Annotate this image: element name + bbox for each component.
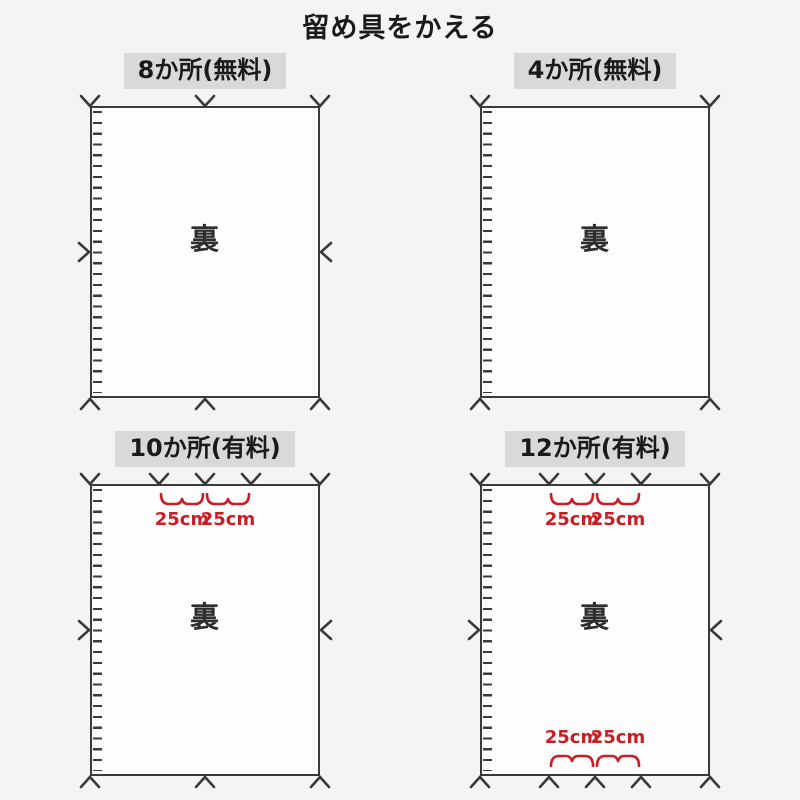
futon-back-sheet: 裏 25cm25cm25cm25cm [480, 484, 710, 776]
panel-grid: 8か所(無料) 裏 4か所(無料) 裏 [10, 47, 790, 793]
fastener-mark-right-icon [77, 241, 91, 263]
back-side-label: 裏 [580, 216, 610, 258]
fastener-mark-left-icon [319, 241, 333, 263]
panel-8-places-header: 8か所(無料) [74, 53, 336, 89]
sewn-edge-ticks [93, 111, 102, 393]
panel-header-label: 8か所(無料) [124, 53, 287, 89]
panel-4-places-diagram: 裏 [464, 91, 726, 415]
fastener-mark-down-icon [79, 472, 101, 486]
futon-back-sheet: 裏 25cm25cm [90, 484, 320, 776]
distance-brace-icon [595, 752, 641, 767]
fastener-mark-down-icon [240, 472, 262, 486]
panel-10-places-header: 10か所(有料) [74, 431, 336, 467]
fastener-mark-down-icon [584, 472, 606, 486]
fastener-mark-up-icon [469, 397, 491, 411]
panel-10-places: 10か所(有料) 裏 25cm25cm [74, 425, 336, 793]
panel-12-places: 12か所(有料) 裏 25cm25cm25cm25cm [464, 425, 726, 793]
fastener-options-page: 留め具をかえる 8か所(無料) 裏 4か所(無料) [0, 0, 800, 800]
sewn-edge-ticks [93, 489, 102, 771]
fastener-mark-up-icon [538, 775, 560, 789]
fastener-mark-up-icon [584, 775, 606, 789]
fastener-mark-up-icon [630, 775, 652, 789]
fastener-mark-down-icon [148, 472, 170, 486]
back-side-label: 裏 [190, 594, 220, 636]
panel-4-places-header: 4か所(無料) [464, 53, 726, 89]
distance-label: 25cm [591, 729, 645, 747]
distance-brace-icon [595, 493, 641, 508]
fastener-mark-down-icon [699, 94, 721, 108]
fastener-mark-left-icon [319, 619, 333, 641]
panel-4-places: 4か所(無料) 裏 [464, 47, 726, 415]
fastener-mark-down-icon [194, 94, 216, 108]
fastener-mark-up-icon [79, 397, 101, 411]
distance-label: 25cm [591, 511, 645, 529]
panel-8-places: 8か所(無料) 裏 [74, 47, 336, 415]
panel-header-label: 10か所(有料) [115, 431, 294, 467]
fastener-mark-down-icon [309, 472, 331, 486]
distance-label: 25cm [201, 511, 255, 529]
page-title: 留め具をかえる [0, 6, 800, 45]
panel-12-places-header: 12か所(有料) [464, 431, 726, 467]
panel-10-places-diagram: 裏 25cm25cm [74, 469, 336, 793]
fastener-mark-down-icon [630, 472, 652, 486]
fastener-mark-down-icon [194, 472, 216, 486]
sewn-edge-ticks [483, 489, 492, 771]
fastener-mark-down-icon [79, 94, 101, 108]
fastener-mark-up-icon [194, 775, 216, 789]
panel-12-places-diagram: 裏 25cm25cm25cm25cm [464, 469, 726, 793]
fastener-mark-up-icon [699, 775, 721, 789]
distance-brace-icon [549, 752, 595, 767]
fastener-mark-up-icon [699, 397, 721, 411]
fastener-mark-up-icon [309, 775, 331, 789]
distance-brace-icon [205, 493, 251, 508]
fastener-mark-left-icon [709, 619, 723, 641]
fastener-mark-down-icon [469, 94, 491, 108]
fastener-mark-up-icon [194, 397, 216, 411]
fastener-mark-up-icon [309, 397, 331, 411]
fastener-mark-right-icon [467, 619, 481, 641]
fastener-mark-down-icon [538, 472, 560, 486]
back-side-label: 裏 [190, 216, 220, 258]
distance-brace-icon [549, 493, 595, 508]
sewn-edge-ticks [483, 111, 492, 393]
distance-brace-icon [159, 493, 205, 508]
panel-header-label: 12か所(有料) [505, 431, 684, 467]
fastener-mark-down-icon [469, 472, 491, 486]
panel-8-places-diagram: 裏 [74, 91, 336, 415]
futon-back-sheet: 裏 [480, 106, 710, 398]
fastener-mark-down-icon [699, 472, 721, 486]
fastener-mark-up-icon [79, 775, 101, 789]
fastener-mark-down-icon [309, 94, 331, 108]
fastener-mark-right-icon [77, 619, 91, 641]
futon-back-sheet: 裏 [90, 106, 320, 398]
panel-header-label: 4か所(無料) [514, 53, 677, 89]
back-side-label: 裏 [580, 594, 610, 636]
fastener-mark-up-icon [469, 775, 491, 789]
